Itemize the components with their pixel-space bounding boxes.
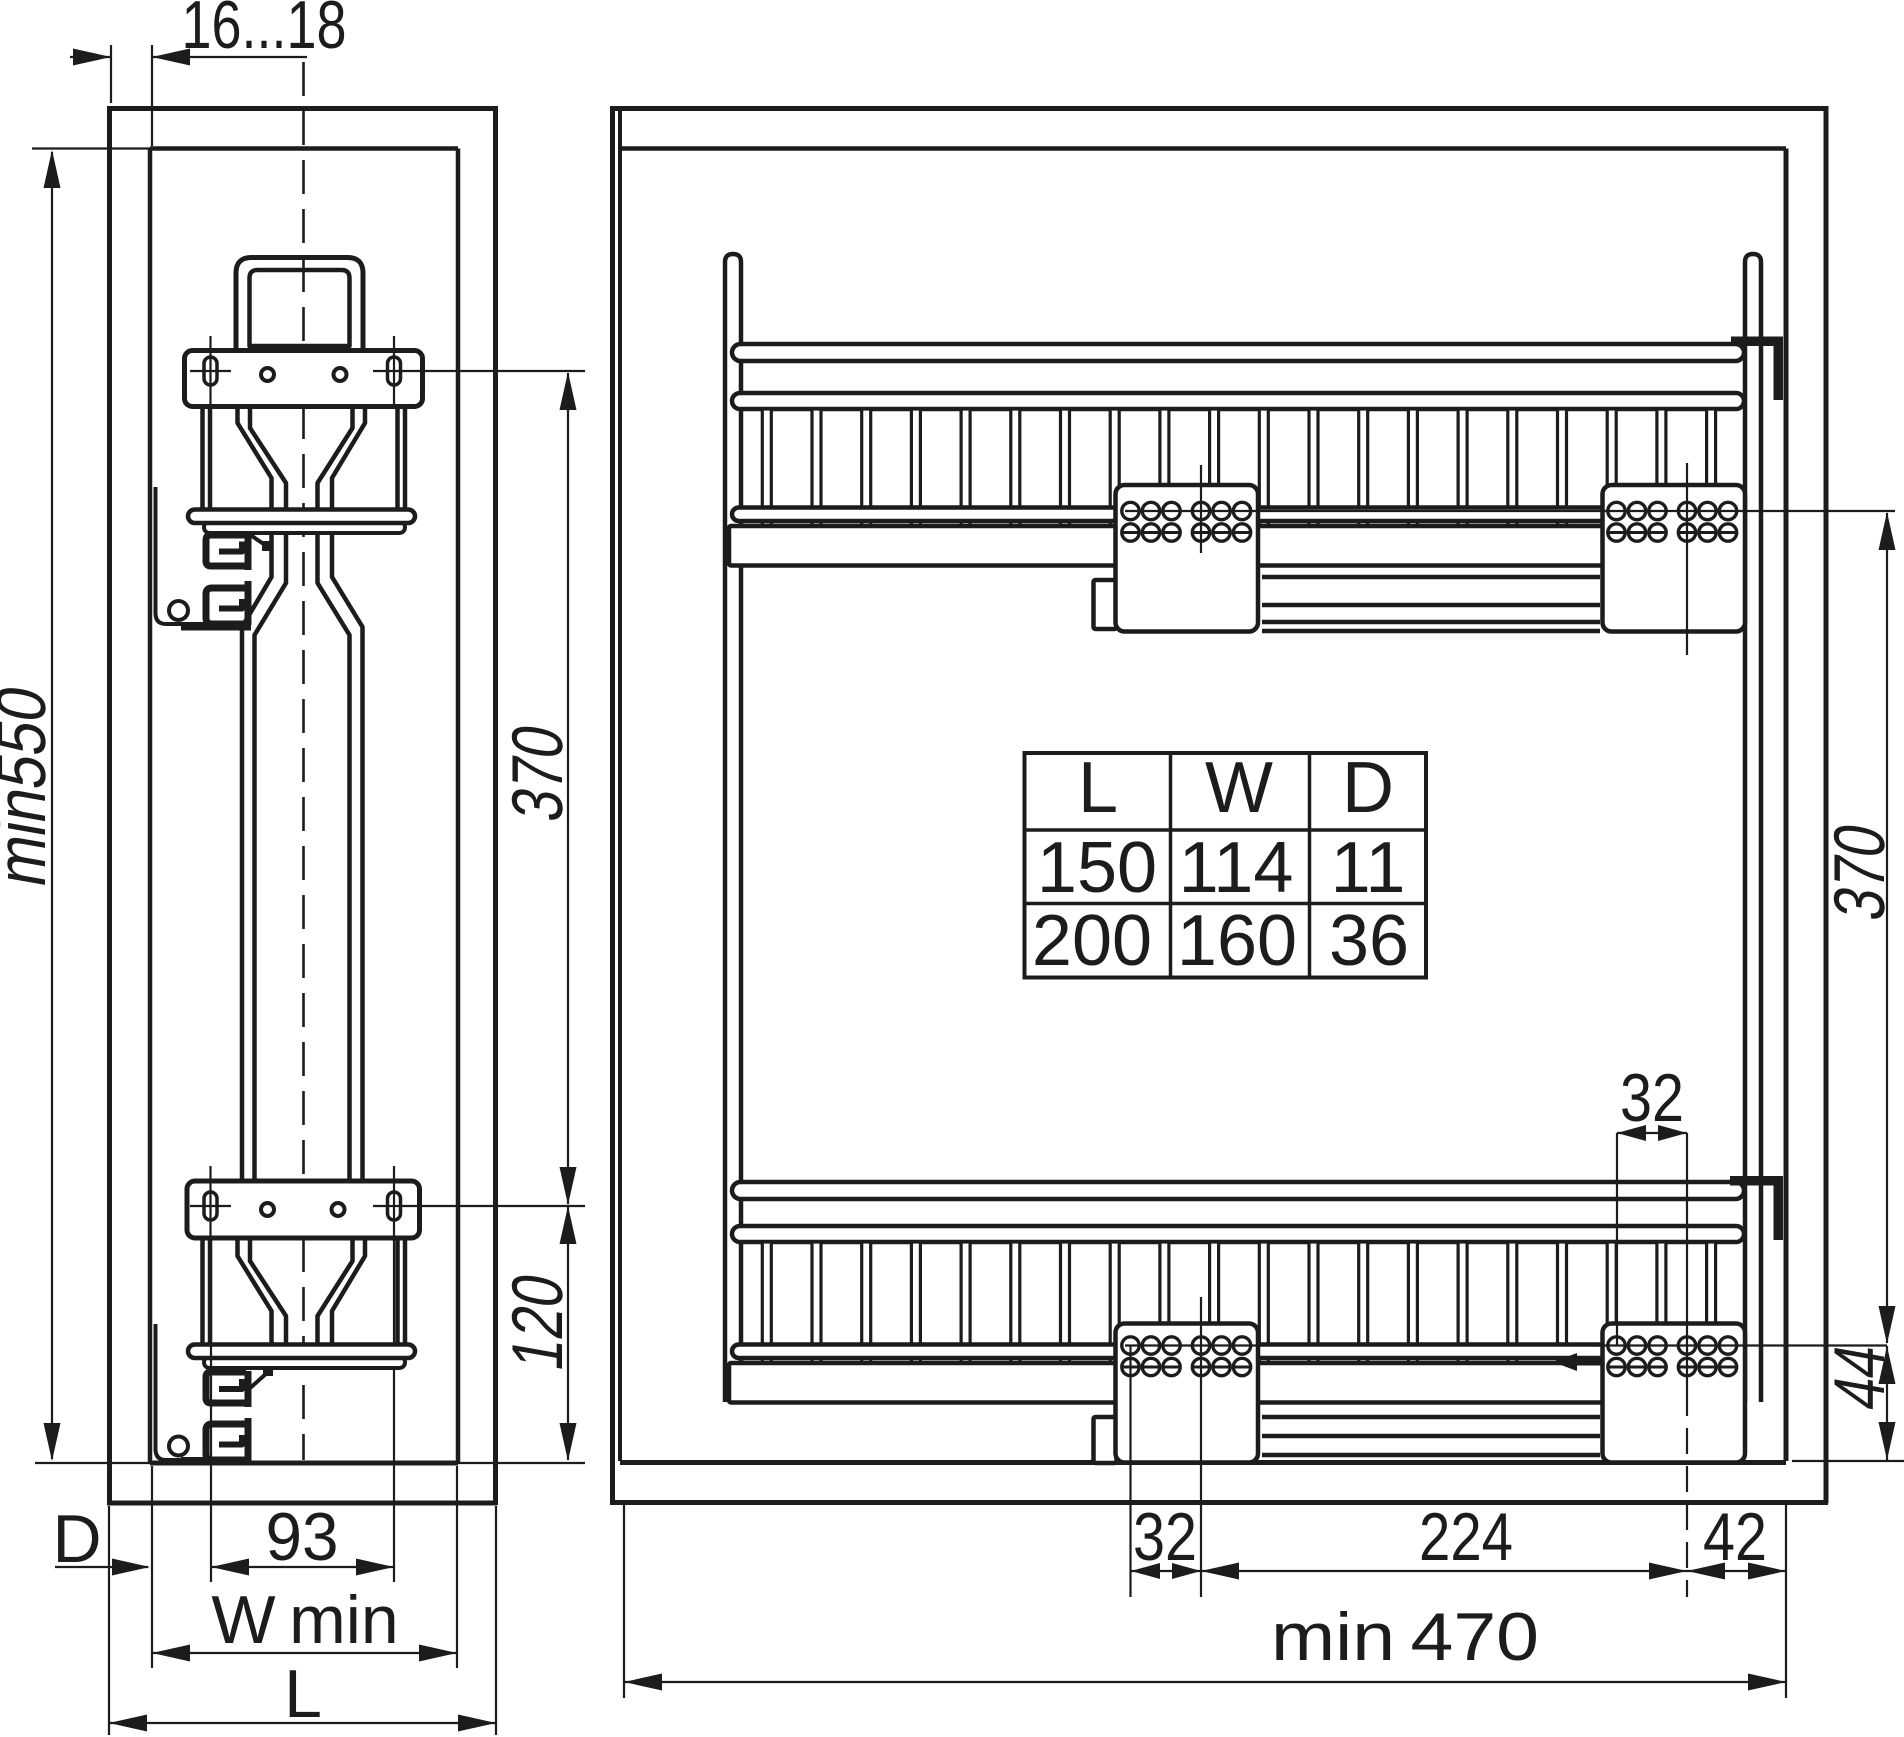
svg-text:370: 370 — [1819, 818, 1899, 926]
svg-text:224: 224 — [1419, 1499, 1513, 1575]
svg-text:36: 36 — [1329, 901, 1409, 981]
svg-text:D: D — [1342, 748, 1394, 828]
svg-text:L: L — [1078, 748, 1118, 828]
svg-text:200: 200 — [1032, 901, 1152, 981]
svg-text:min550: min550 — [0, 680, 60, 892]
svg-text:93: 93 — [266, 1499, 339, 1575]
svg-text:D: D — [52, 1501, 101, 1577]
svg-text:W: W — [1205, 748, 1273, 828]
svg-text:160: 160 — [1177, 901, 1297, 981]
svg-text:120: 120 — [497, 1268, 577, 1376]
svg-text:42: 42 — [1703, 1499, 1767, 1575]
svg-text:11: 11 — [1331, 828, 1406, 908]
svg-text:114: 114 — [1179, 828, 1294, 908]
svg-text:32: 32 — [1133, 1499, 1197, 1575]
svg-text:W min: W min — [211, 1582, 398, 1658]
svg-text:min 470: min 470 — [1271, 1599, 1539, 1675]
svg-text:L: L — [284, 1656, 322, 1732]
svg-text:150: 150 — [1037, 828, 1157, 908]
svg-text:16...18: 16...18 — [182, 0, 347, 63]
svg-text:32: 32 — [1620, 1060, 1684, 1136]
svg-text:370: 370 — [497, 719, 577, 827]
